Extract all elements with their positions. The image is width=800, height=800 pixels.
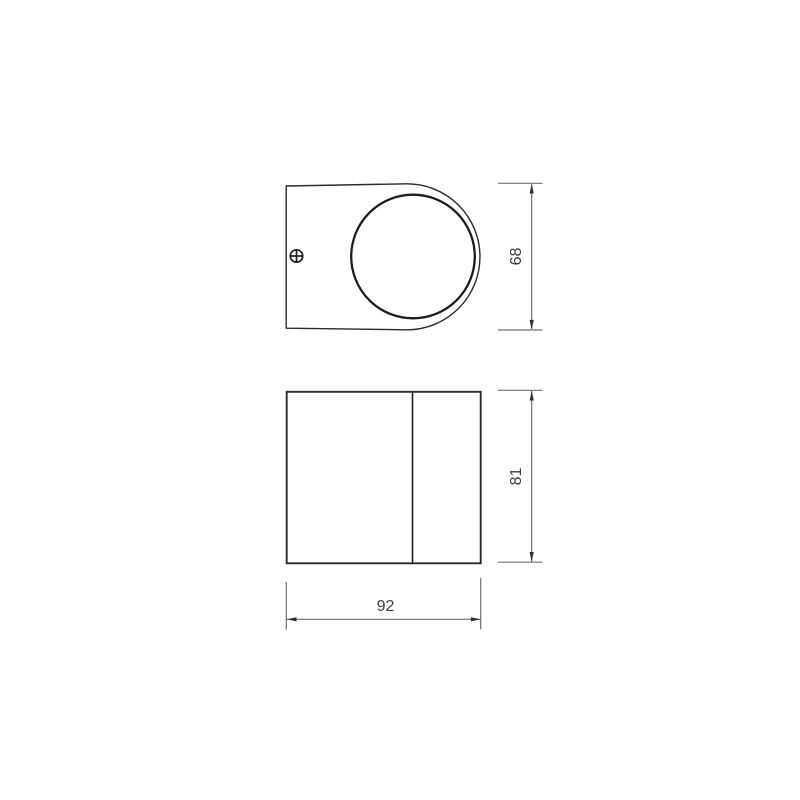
dimension-label-92: 92 <box>377 598 395 615</box>
top-view-outline <box>286 184 480 330</box>
arrow-down-icon <box>530 320 534 330</box>
top-view <box>286 184 480 330</box>
phillips-screw-icon <box>290 250 302 262</box>
arrow-up-icon <box>530 184 534 194</box>
dimension-label-81: 81 <box>508 468 525 486</box>
arrow-down-icon <box>530 552 534 562</box>
dimension-drawing: 68 81 92 <box>0 0 800 800</box>
dimension-top-height: 68 <box>498 183 543 330</box>
arrow-right-icon <box>471 617 481 621</box>
top-view-lens-circle <box>351 195 475 319</box>
arrow-up-icon <box>530 391 534 401</box>
arrow-left-icon <box>287 617 297 621</box>
dimension-label-68: 68 <box>508 248 525 266</box>
side-view <box>287 392 481 564</box>
dimension-drawing-page: 68 81 92 <box>0 0 800 800</box>
dimension-side-height: 81 <box>498 390 543 562</box>
dimension-width: 92 <box>286 578 480 630</box>
side-view-body <box>287 392 481 564</box>
